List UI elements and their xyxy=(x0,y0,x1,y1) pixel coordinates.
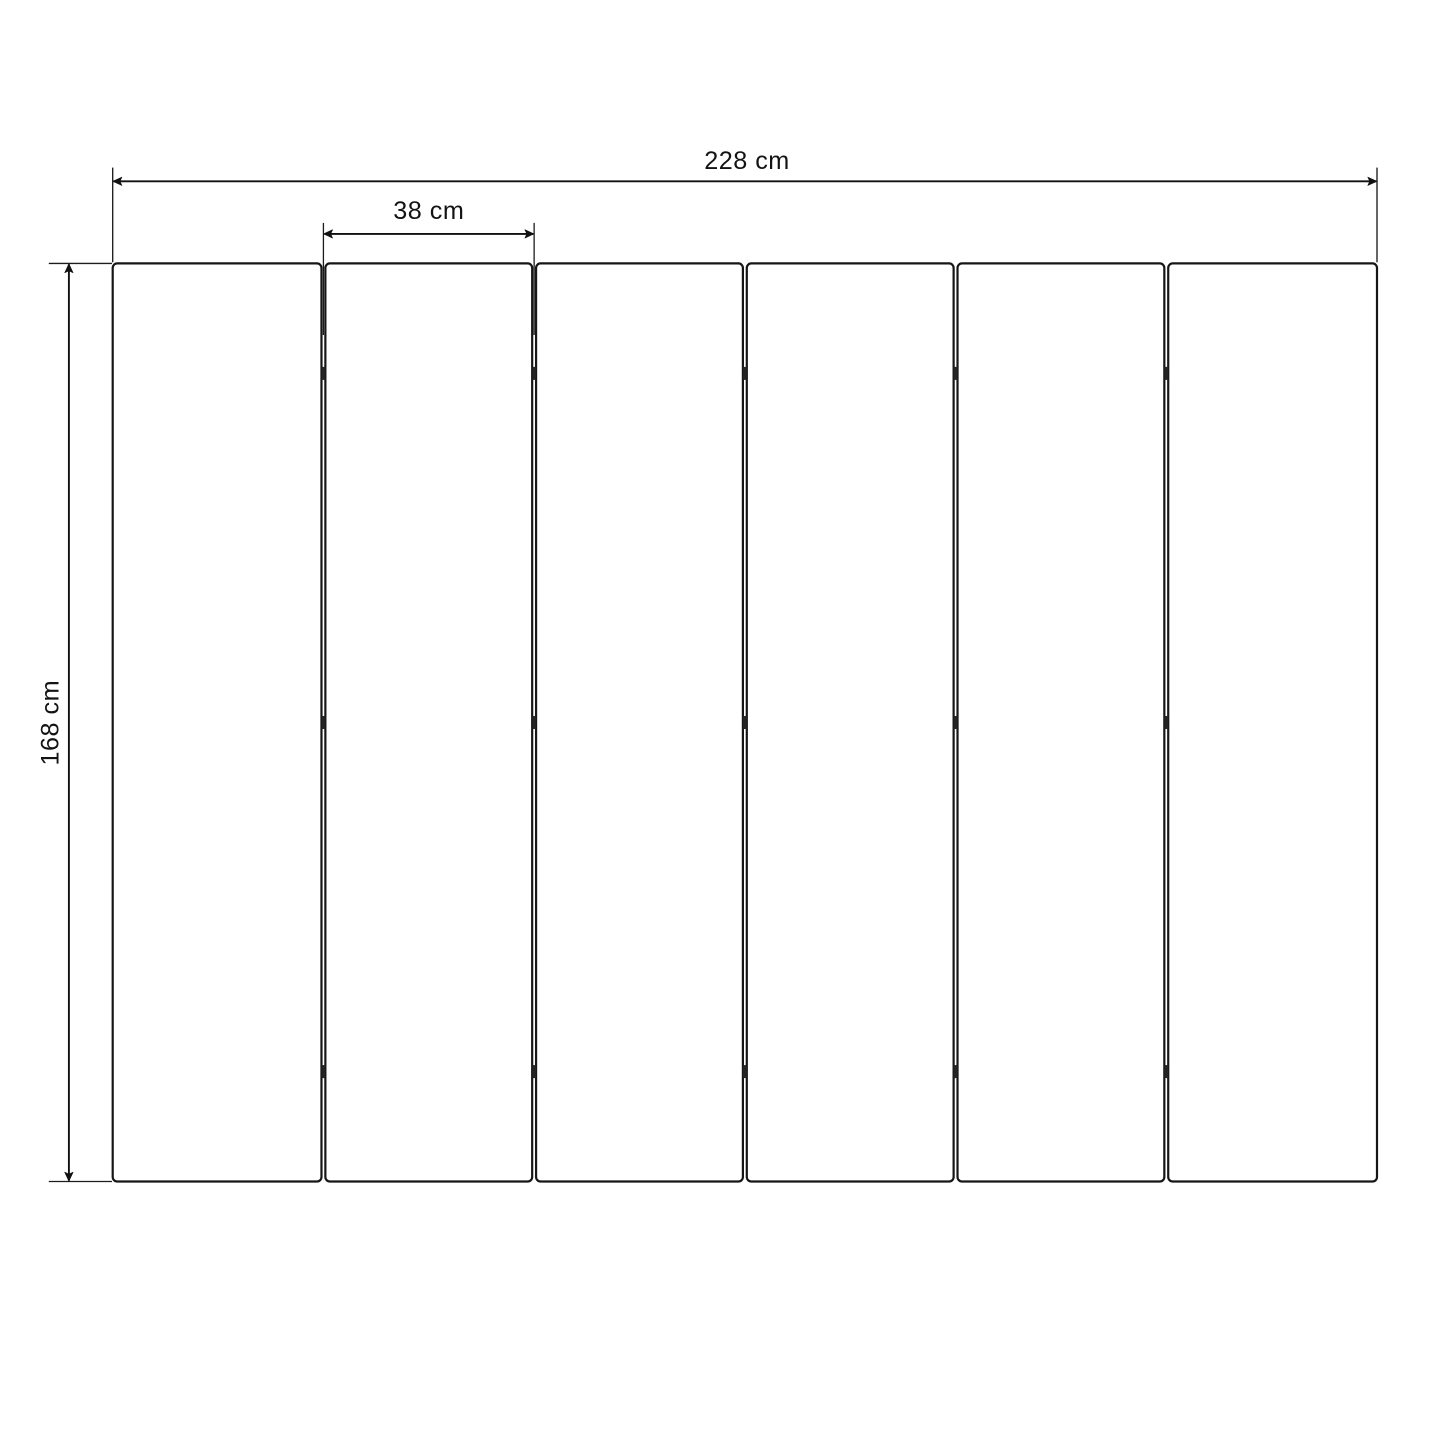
svg-text:38 cm: 38 cm xyxy=(393,197,464,225)
svg-text:228 cm: 228 cm xyxy=(704,147,790,175)
svg-text:168 cm: 168 cm xyxy=(37,680,65,766)
